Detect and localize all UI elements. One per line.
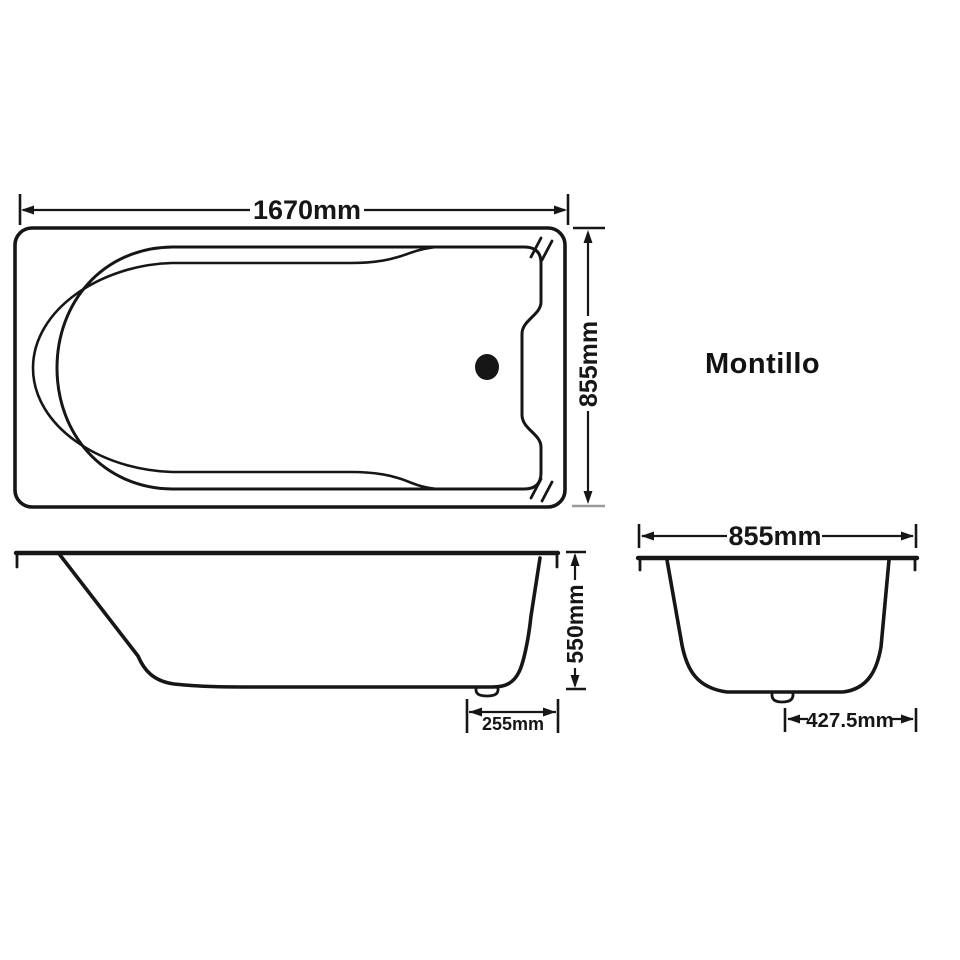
technical-drawing-svg: 1670mm [0,0,960,960]
top-view: 1670mm [15,194,605,507]
bathtub-dimension-drawing: 1670mm [0,0,960,960]
end-view-width-label: 855mm [728,521,821,551]
arrowhead-right-icon [543,708,556,717]
side-view-tub-profile [60,555,540,687]
side-view: 550mm 255mm [16,552,588,734]
side-view-offset-dimension: 255mm [467,699,558,734]
arrowhead-right-icon [554,206,567,215]
top-view-length-dimension: 1670mm [20,194,568,225]
end-view-width-dimension: 855mm [639,521,916,551]
arrowhead-right-icon [901,532,914,541]
end-view: 855mm 427.5mm [638,521,917,732]
arrowhead-left-icon [469,708,482,717]
end-view-half-width-label: 427.5mm [806,709,894,732]
arrowhead-left-icon [787,715,800,724]
side-view-height-dimension: 550mm [562,552,588,689]
arrowhead-up-icon [571,553,580,566]
arrowhead-down-icon [571,675,580,688]
drain-hole-icon [475,354,499,380]
arrowhead-left-icon [641,532,654,541]
arrowhead-right-icon [901,715,914,724]
top-view-length-label: 1670mm [253,195,361,225]
arrowhead-left-icon [21,206,34,215]
arrowhead-down-icon [584,491,593,504]
side-view-height-label: 550mm [562,584,588,663]
top-view-width-label: 855mm [575,321,603,407]
top-view-width-dimension: 855mm [572,228,605,506]
corner-hatch-marks-bottom-right [531,479,552,501]
brand-name: Montillo [705,348,820,380]
arrowhead-up-icon [584,230,593,243]
end-view-half-width-dimension: 427.5mm [785,708,916,732]
tub-inner-rim-outline [57,247,541,489]
side-view-offset-label: 255mm [482,714,544,734]
end-view-tub-profile [667,560,889,692]
tub-bowl-outline [33,247,437,489]
